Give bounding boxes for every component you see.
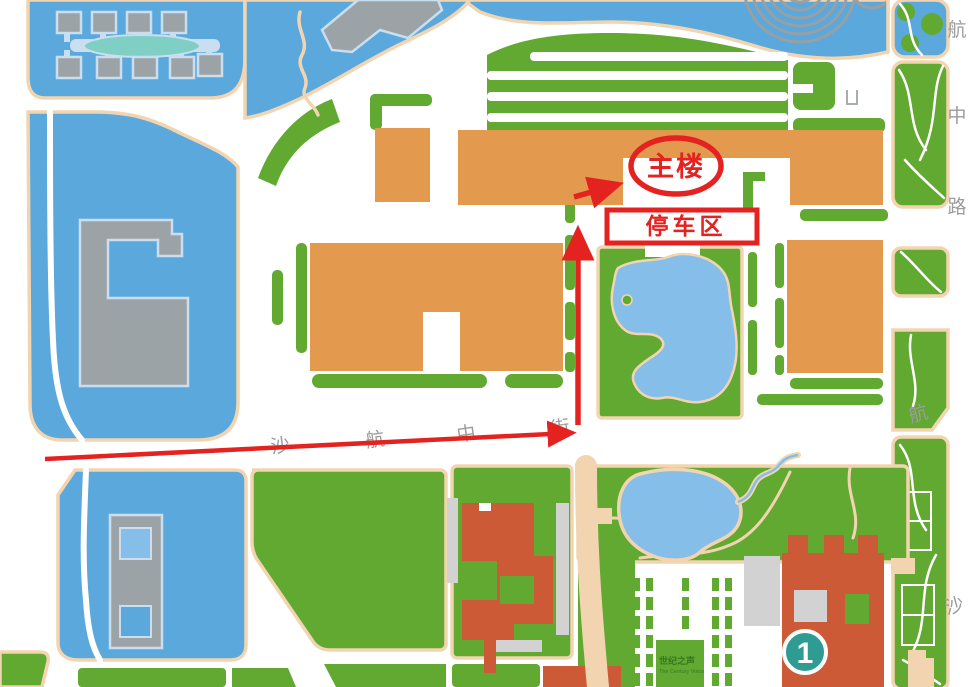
tan-road-south	[586, 466, 598, 687]
watermark-subtitle: The Century Voice	[659, 669, 704, 675]
campus-map: 1 沙 航 中 街 航 中 路 航 沙 世纪之声 The Century Voi…	[0, 0, 971, 687]
street-label-char: 街	[549, 416, 571, 440]
road-label-char: 路	[947, 196, 966, 218]
building-number: 1	[797, 637, 814, 670]
academic-block-east	[787, 240, 883, 373]
east-green-parcels	[893, 3, 948, 687]
campus-map-canvas: 1 沙 航 中 街 航 中 路 航 沙 世纪之声 The Century Voi…	[0, 0, 971, 687]
southwest-gray-building	[110, 515, 162, 648]
watermark-title: 世纪之声	[659, 655, 695, 666]
courtyard-garden	[598, 245, 742, 418]
main-building-label: 主楼	[647, 152, 705, 182]
east-parcel-1	[893, 62, 948, 207]
street-label-char: 中	[455, 422, 477, 446]
academic-block-north	[458, 130, 623, 205]
road-label-char: 航	[947, 19, 966, 41]
residential-pool	[84, 35, 200, 57]
road-label-char: 中	[947, 105, 966, 127]
academic-block-northwest	[375, 128, 430, 202]
parking-area-label: 停车区	[646, 213, 727, 239]
